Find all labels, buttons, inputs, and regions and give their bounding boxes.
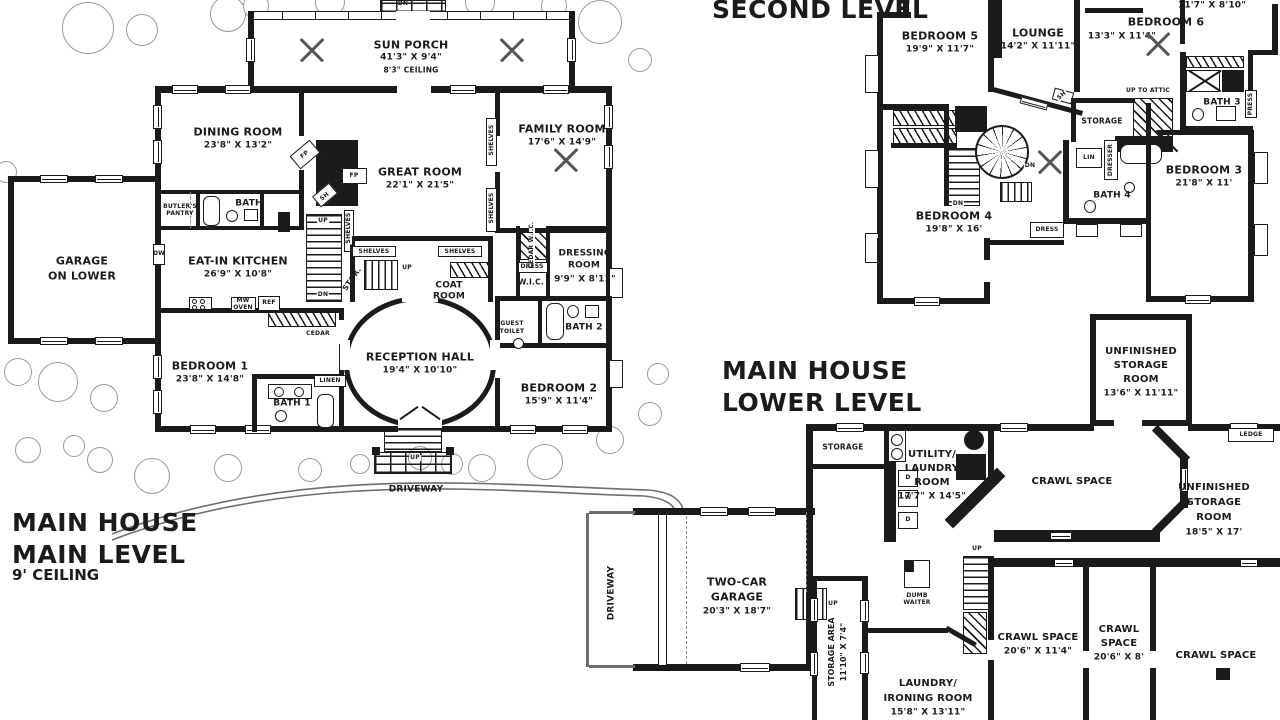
wall [1150,567,1156,651]
room-dims-unfin-right: 18'5" X 17' [1186,529,1243,538]
window [810,598,818,622]
equipment [956,454,986,480]
driveway-edge [589,511,635,514]
sink [891,448,903,460]
wall [988,556,994,640]
room-label-crawl-top: CRAWL SPACE [1032,477,1113,487]
stair-label: UP [971,546,983,552]
wall [1150,668,1156,720]
room-dims-unfin-top: 13'6" X 11'11" [1104,390,1179,399]
window [1054,559,1074,567]
wall [862,576,868,720]
window [810,652,818,676]
window [836,423,864,432]
room-label-unfin-top: UNFINISHED [1105,347,1177,357]
room-dims-crawl1: 20'6" X 11'4" [1004,648,1072,657]
wall [868,628,948,633]
room-label-unfin-right: UNFINISHED [1178,483,1250,493]
wall [806,464,888,469]
lower-level-plan: MAIN HOUSE LOWER LEVEL [0,0,1280,720]
wall-mass [994,558,1280,567]
window [748,507,776,516]
window [700,507,728,516]
room-dims-laundry: 15'8" X 13'11" [891,709,966,718]
window [860,652,869,674]
room-label-unfin-top2: STORAGE [1114,361,1168,371]
wall [1090,314,1192,320]
storage-area-dims: 11'10" X 7'4" [838,617,850,686]
room-label-crawl2: CRAWL [1099,625,1140,635]
wall [1083,668,1089,720]
room-label-unfin-right2: STORAGE [1187,498,1241,508]
wall [1083,567,1089,651]
window [1000,423,1028,432]
room-label-unfin-right3: ROOM [1196,513,1231,523]
room-label-laundry2: IRONING ROOM [883,694,972,704]
garage-door [658,514,667,666]
title-lower-house: MAIN HOUSE [722,356,908,385]
driveway-label-lower: DRIVEWAY [608,566,617,621]
room-label-utility: UTILITY/ [908,450,956,460]
wall [812,576,868,581]
title-lower-level: LOWER LEVEL [722,388,922,417]
window [1240,559,1258,567]
room-label-crawl2b: SPACE [1101,639,1138,649]
driveway-edge [586,513,589,667]
window [860,600,869,622]
ledge-label: LEDGE [1240,432,1263,438]
wall [988,660,994,720]
stair-hatch [963,612,987,654]
room-label-laundry: LAUNDRY/ [899,679,957,689]
furnace [964,430,984,450]
wall [1090,314,1096,426]
wall-mass [994,530,1160,542]
wall-mass [904,560,914,572]
driveway-edge [589,665,635,668]
window [740,663,770,672]
appliance-label-d2: D [905,517,910,523]
room-label-garage2: GARAGE [711,592,763,603]
appliance-label-w: W [905,495,912,501]
room-label-utility2: LAUNDRY [905,464,959,474]
room-label-crawl1: CRAWL SPACE [998,633,1079,643]
storage-area-name: STORAGE AREA [826,617,838,686]
wall [1186,314,1192,426]
room-label-unfin-top3: ROOM [1123,375,1158,385]
room-dims-crawl2: 20'6" X 8' [1094,654,1144,663]
floor-plan-sheet: DN SUN PORCH 41'3" X 9'4" 8'3" CEILING D… [0,0,1280,720]
room-label-crawl3: CRAWL SPACE [1176,651,1257,661]
room-label-garage: TWO-CAR [707,577,767,588]
storage-area-label: STORAGE AREA 11'10" X 7'4" [826,617,850,686]
door-gap [1114,420,1142,426]
sink [891,434,903,446]
window [1050,532,1072,540]
room-dims-garage: 20'3" X 18'7" [703,608,771,617]
deck-line [806,512,807,592]
stair [963,556,989,610]
room-label-storage-lower: STORAGE [822,443,863,451]
stair-label: UP [827,601,839,607]
appliance-label-d: D [905,475,910,481]
room-label-utility3: ROOM [914,478,949,488]
garage-bay-line [686,516,687,664]
support-post [1216,668,1230,680]
dumb-waiter-label2: WAITER [903,600,930,606]
